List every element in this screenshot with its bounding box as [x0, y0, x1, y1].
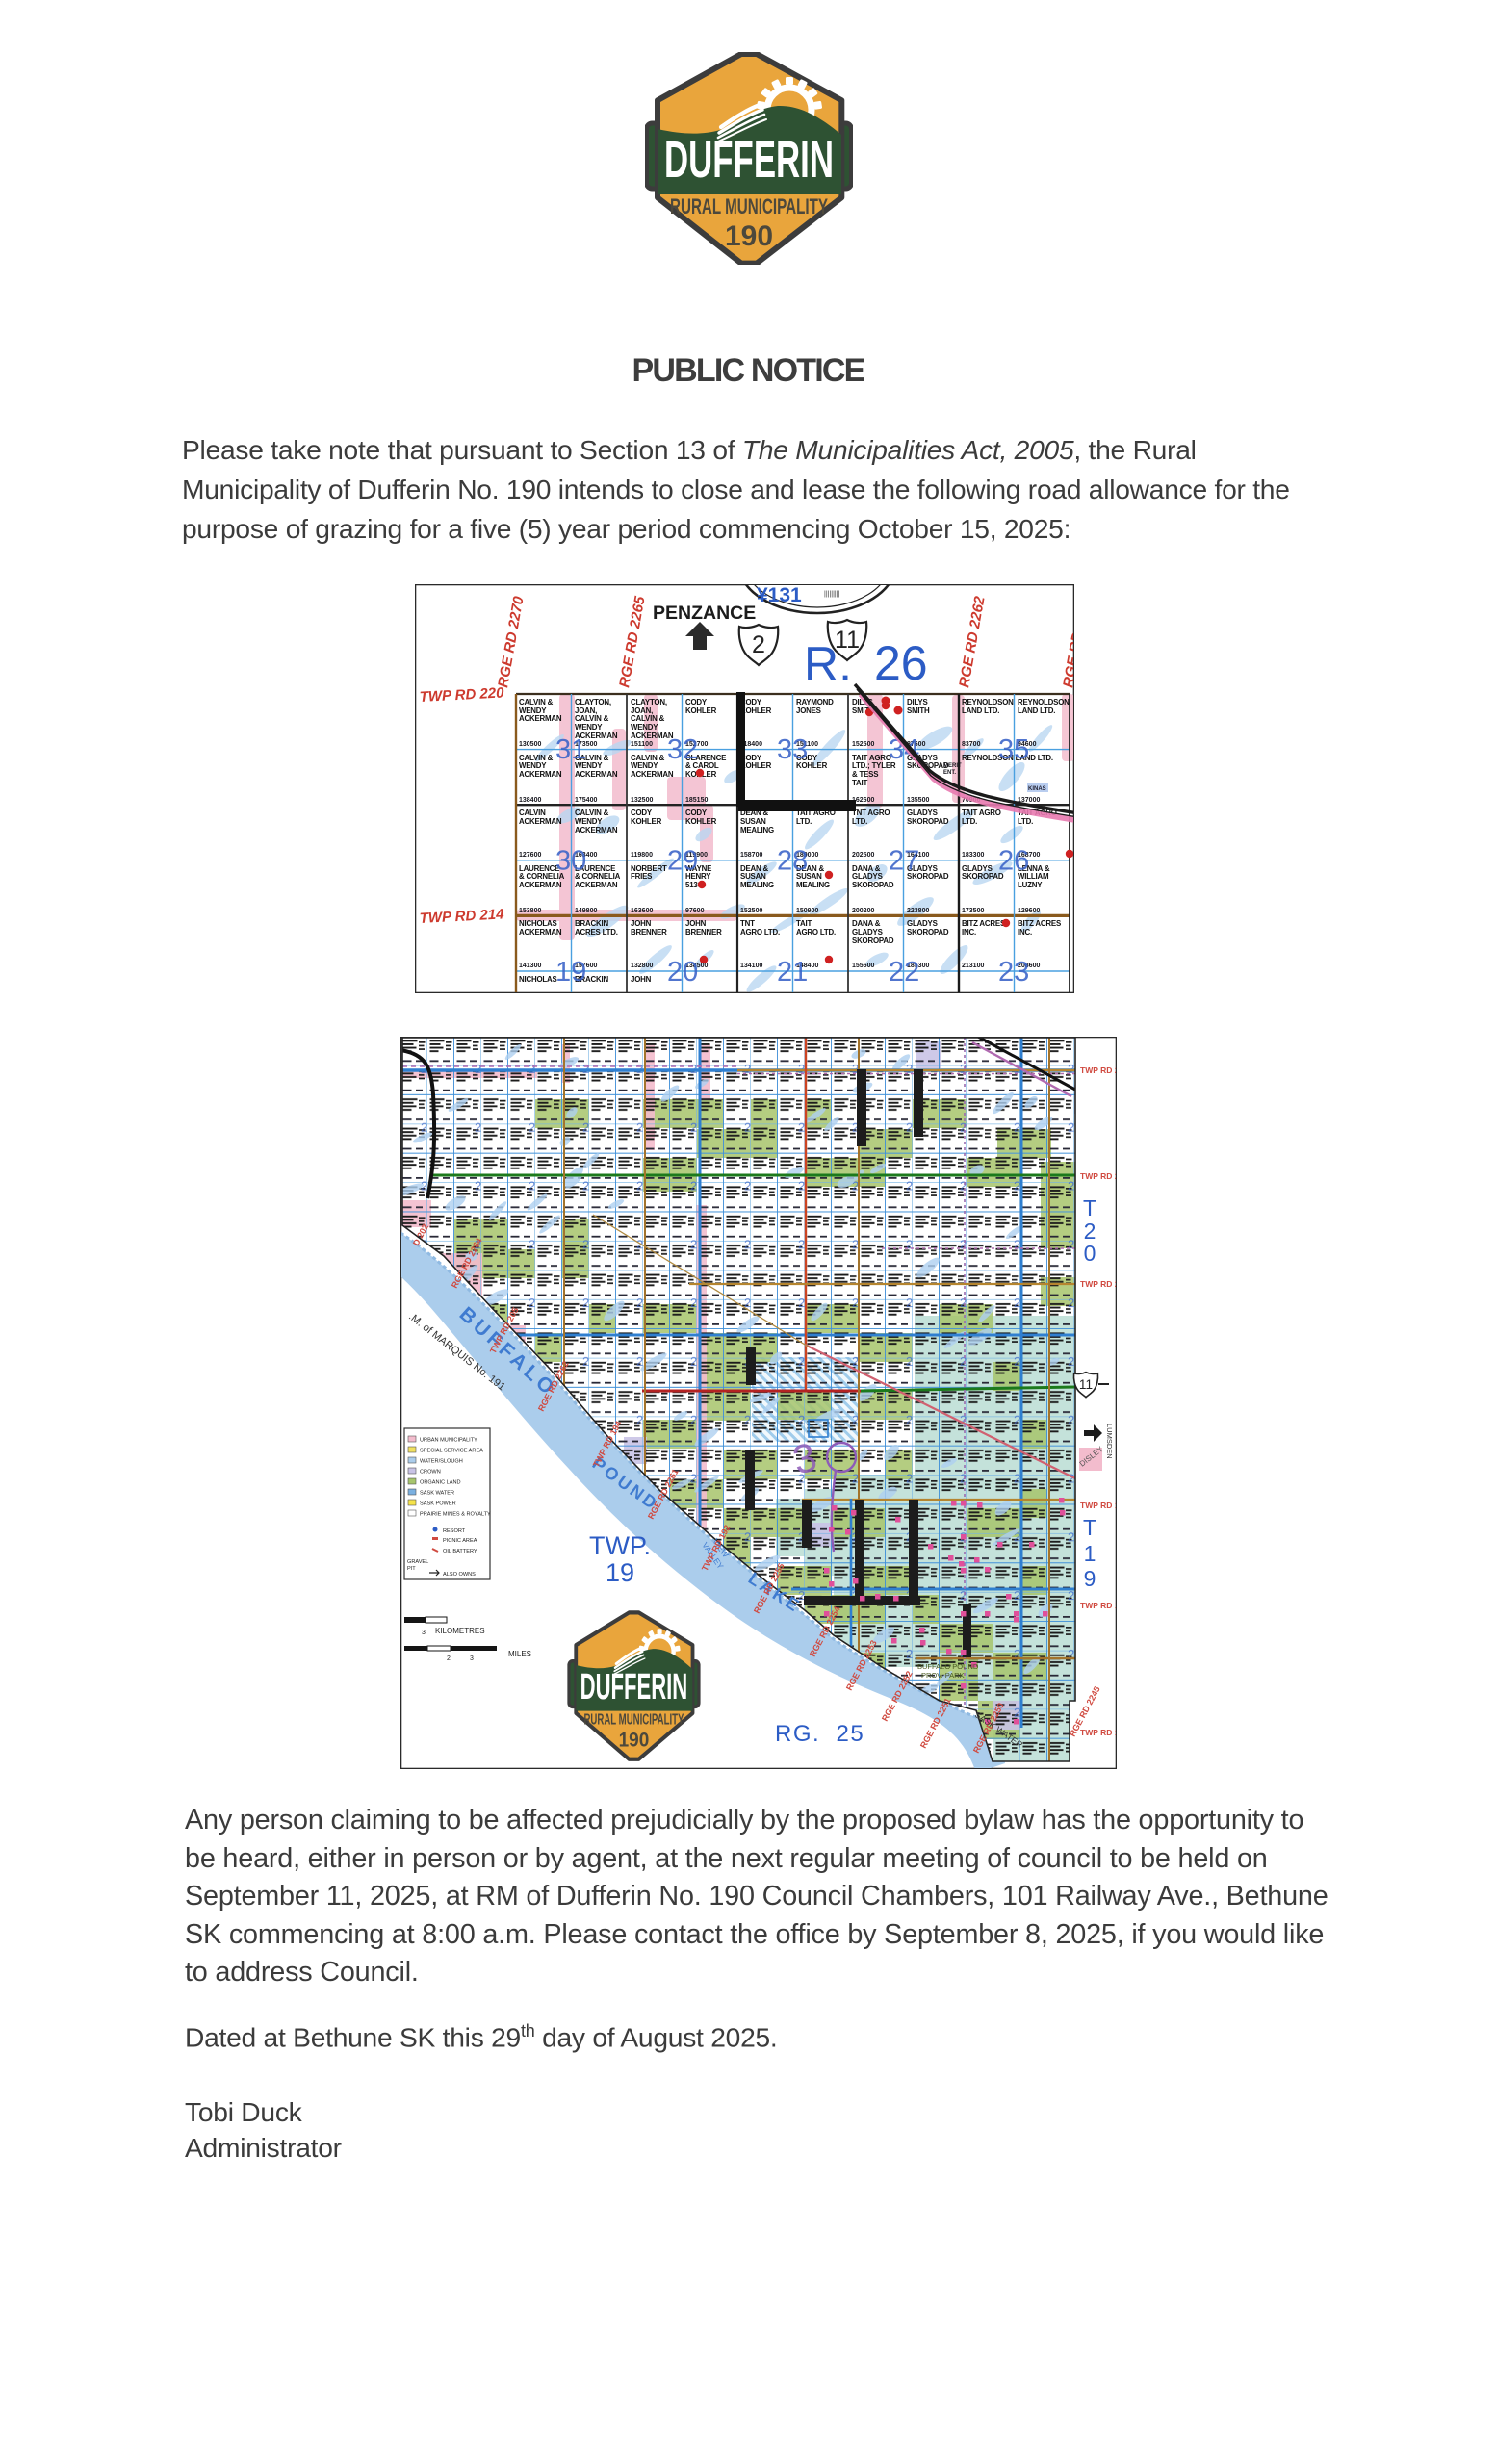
svg-text:TWP RD 2-6: TWP RD 2-6 — [1080, 1279, 1117, 1289]
svg-text:CLAYTON,: CLAYTON, — [575, 698, 611, 706]
svg-text:213100: 213100 — [962, 962, 984, 969]
svg-text:CALVIN: CALVIN — [519, 808, 546, 817]
svg-text:ACKERMAN: ACKERMAN — [631, 770, 674, 779]
svg-text:138400: 138400 — [519, 797, 541, 804]
svg-text:CALVIN &: CALVIN & — [631, 714, 665, 723]
svg-text:TWP RD 2-0: TWP RD 2-0 — [1080, 1171, 1117, 1181]
svg-text:127600: 127600 — [519, 852, 541, 859]
svg-text:LAND LTD.: LAND LTD. — [1018, 706, 1055, 715]
svg-text:KOHLER: KOHLER — [631, 817, 662, 826]
svg-text:AGRO LTD.: AGRO LTD. — [796, 928, 836, 937]
svg-text:ACKERMAN: ACKERMAN — [575, 770, 618, 779]
svg-text:MEALING: MEALING — [740, 826, 774, 834]
svg-text:ACKERMAN: ACKERMAN — [575, 826, 618, 834]
svg-text:3: 3 — [422, 1630, 426, 1636]
svg-text:LTD.: LTD. — [1018, 817, 1033, 826]
svg-text:INC.: INC. — [1018, 928, 1032, 937]
svg-text:185150: 185150 — [685, 797, 708, 804]
svg-text:33: 33 — [777, 734, 808, 765]
svg-text:135500: 135500 — [907, 797, 929, 804]
svg-text:223800: 223800 — [907, 908, 929, 914]
svg-text:MILES: MILES — [508, 1650, 531, 1658]
svg-text:83700: 83700 — [962, 741, 981, 748]
svg-text:MERIT: MERIT — [943, 763, 962, 769]
svg-text:130500: 130500 — [519, 741, 541, 748]
svg-text:GRAVEL: GRAVEL — [407, 1559, 428, 1565]
svg-text:BITZ ACRES: BITZ ACRES — [962, 919, 1005, 928]
svg-text:151100: 151100 — [631, 741, 653, 748]
svg-text:97600: 97600 — [685, 908, 705, 914]
svg-text:132500: 132500 — [631, 797, 653, 804]
svg-text:TWP.: TWP. — [589, 1531, 651, 1560]
svg-text:GLADYS: GLADYS — [852, 928, 883, 937]
svg-text:2: 2 — [752, 631, 765, 658]
svg-text:119800: 119800 — [631, 852, 653, 859]
svg-text:WENDY: WENDY — [631, 761, 658, 770]
svg-text:ENT.: ENT. — [943, 770, 956, 776]
svg-text:RAYMOND: RAYMOND — [796, 698, 834, 706]
svg-text:SKOROPAD: SKOROPAD — [907, 817, 949, 826]
svg-text:LUZNY: LUZNY — [1018, 881, 1043, 889]
svg-text:2: 2 — [447, 1655, 451, 1662]
svg-text:& TESS: & TESS — [852, 770, 878, 779]
svg-text:141300: 141300 — [519, 962, 541, 969]
svg-text:TWP RD 1-8: TWP RD 1-8 — [1080, 1728, 1117, 1737]
svg-text:PRAIRIE MINES & ROYALTY: PRAIRIE MINES & ROYALTY — [420, 1512, 491, 1518]
svg-text:DILYS: DILYS — [907, 698, 928, 706]
svg-text:SPECIAL SERVICE AREA: SPECIAL SERVICE AREA — [420, 1449, 483, 1454]
svg-text:23: 23 — [998, 957, 1029, 988]
svg-text:19: 19 — [555, 957, 586, 988]
svg-text:REYNOLDSON: REYNOLDSON — [962, 698, 1014, 706]
svg-text:MEALING: MEALING — [740, 881, 774, 889]
svg-text:RG. 25: RG. 25 — [775, 1721, 864, 1747]
svg-text:JONES: JONES — [796, 706, 821, 715]
svg-text:155600: 155600 — [852, 962, 874, 969]
svg-text:SKOROPAD: SKOROPAD — [852, 937, 894, 945]
svg-text:CODY: CODY — [685, 808, 708, 817]
svg-text:KOHLER: KOHLER — [685, 817, 717, 826]
svg-text:TWP RD 1-2: TWP RD 1-2 — [1080, 1501, 1117, 1510]
svg-text:WENDY: WENDY — [631, 723, 658, 731]
svg-text:TAIT: TAIT — [852, 779, 868, 787]
svg-text:INC.: INC. — [962, 928, 976, 937]
svg-text:200200: 200200 — [852, 908, 874, 914]
svg-text:202500: 202500 — [852, 852, 874, 859]
svg-text:150900: 150900 — [796, 908, 818, 914]
svg-text:ACRES LTD.: ACRES LTD. — [575, 928, 618, 937]
svg-text:28: 28 — [777, 846, 808, 877]
svg-text:LUMSDEN: LUMSDEN — [1105, 1424, 1114, 1459]
svg-text:29: 29 — [667, 846, 698, 877]
svg-text:¥131: ¥131 — [757, 584, 802, 606]
svg-text:183300: 183300 — [962, 852, 984, 859]
svg-text:REYNOLDSON: REYNOLDSON — [1018, 698, 1070, 706]
svg-text:3: 3 — [470, 1655, 474, 1662]
svg-text:LTD.: LTD. — [796, 817, 812, 826]
svg-text:JOHN: JOHN — [631, 919, 652, 928]
svg-text:WATER/SLOUGH: WATER/SLOUGH — [420, 1459, 463, 1465]
svg-text:TAIT: TAIT — [796, 919, 812, 928]
svg-text:CODY: CODY — [631, 808, 653, 817]
svg-text:CALVIN &: CALVIN & — [519, 698, 554, 706]
svg-text:175400: 175400 — [575, 797, 597, 804]
svg-text:ACKERMAN: ACKERMAN — [519, 881, 562, 889]
svg-text:PICNIC AREA: PICNIC AREA — [443, 1538, 477, 1544]
svg-text:173500: 173500 — [962, 908, 984, 914]
svg-text:T: T — [1083, 1515, 1096, 1540]
svg-text:GLADYS: GLADYS — [907, 919, 938, 928]
svg-text:WENDY: WENDY — [575, 817, 603, 826]
svg-text:149800: 149800 — [575, 908, 597, 914]
svg-text:32: 32 — [667, 734, 698, 765]
svg-text:TNT: TNT — [740, 919, 755, 928]
svg-text:CROWN: CROWN — [420, 1470, 441, 1476]
svg-text:ACKERMAN: ACKERMAN — [575, 881, 618, 889]
svg-text:NICHOLAS: NICHOLAS — [519, 975, 557, 984]
svg-text:26: 26 — [998, 846, 1029, 877]
svg-text:R.: R. — [804, 637, 852, 691]
svg-text:SKOROPAD: SKOROPAD — [907, 928, 949, 937]
svg-text:134100: 134100 — [740, 962, 762, 969]
svg-text:SUSAN: SUSAN — [740, 872, 766, 881]
svg-text:20: 20 — [667, 957, 698, 988]
svg-text:152500: 152500 — [740, 908, 762, 914]
svg-text:BRENNER: BRENNER — [631, 928, 667, 937]
svg-text:TWP RD 2-2: TWP RD 2-2 — [1080, 1065, 1117, 1075]
svg-text:153800: 153800 — [519, 908, 541, 914]
svg-text:129600: 129600 — [1018, 908, 1040, 914]
svg-text:CODY: CODY — [685, 698, 708, 706]
svg-text:KILOMETRES: KILOMETRES — [435, 1627, 485, 1635]
svg-text:NICHOLAS: NICHOLAS — [519, 919, 557, 928]
svg-text:0: 0 — [1084, 1241, 1096, 1266]
svg-text:LAND LTD.: LAND LTD. — [962, 706, 999, 715]
svg-text:FRIES: FRIES — [631, 872, 652, 881]
svg-text:PROV. PARK: PROV. PARK — [921, 1671, 965, 1680]
svg-text:35: 35 — [998, 734, 1029, 765]
svg-text:LTD.: LTD. — [852, 817, 867, 826]
svg-text:|||||||||: ||||||||| — [824, 591, 840, 598]
svg-text:ACKERMAN: ACKERMAN — [519, 714, 562, 723]
svg-text:ORGANIC LAND: ORGANIC LAND — [420, 1480, 461, 1486]
svg-text:11: 11 — [1079, 1377, 1093, 1392]
svg-text:1: 1 — [1084, 1541, 1096, 1566]
svg-text:SUSAN: SUSAN — [740, 817, 766, 826]
svg-text:SMITH: SMITH — [907, 706, 930, 715]
svg-text:KINAS: KINAS — [1028, 786, 1046, 792]
svg-text:T: T — [1083, 1195, 1096, 1220]
svg-text:ACKERMAN: ACKERMAN — [519, 770, 562, 779]
svg-text:SASK WATER: SASK WATER — [420, 1491, 454, 1497]
svg-text:SKOROPAD: SKOROPAD — [852, 881, 894, 889]
svg-text:27: 27 — [889, 846, 919, 877]
svg-text:26: 26 — [874, 636, 928, 690]
svg-text:19: 19 — [606, 1558, 634, 1587]
svg-text:TAIT AGRO: TAIT AGRO — [962, 808, 1001, 817]
svg-text:URBAN MUNICIPALITY: URBAN MUNICIPALITY — [420, 1438, 477, 1444]
svg-text:DANA &: DANA & — [852, 919, 881, 928]
svg-text:CALVIN &: CALVIN & — [575, 714, 609, 723]
svg-text:LTD.: LTD. — [962, 817, 977, 826]
svg-text:BITZ ACRES: BITZ ACRES — [1018, 919, 1061, 928]
svg-text:SASK POWER: SASK POWER — [420, 1501, 456, 1507]
svg-text:CALVIN &: CALVIN & — [575, 808, 609, 817]
svg-text:JOHN: JOHN — [685, 919, 707, 928]
svg-text:31: 31 — [555, 734, 586, 765]
svg-text:PENZANCE: PENZANCE — [653, 603, 756, 624]
svg-text:TWP RD 1-0: TWP RD 1-0 — [1080, 1601, 1117, 1610]
svg-text:9: 9 — [1084, 1566, 1096, 1591]
svg-text:CLAYTON,: CLAYTON, — [631, 698, 667, 706]
svg-text:GLADYS: GLADYS — [852, 872, 883, 881]
svg-text:WENDY: WENDY — [575, 723, 603, 731]
svg-text:132800: 132800 — [631, 962, 653, 969]
svg-text:BUFFALO POUND: BUFFALO POUND — [917, 1662, 979, 1671]
svg-text:22: 22 — [889, 957, 919, 988]
svg-text:AGRO LTD.: AGRO LTD. — [740, 928, 780, 937]
svg-text:30: 30 — [555, 846, 586, 877]
svg-text:WENDY: WENDY — [519, 761, 547, 770]
svg-text:JOHN: JOHN — [631, 975, 652, 984]
svg-text:158700: 158700 — [740, 852, 762, 859]
svg-text:MEALING: MEALING — [796, 881, 830, 889]
svg-text:KOHLER: KOHLER — [685, 706, 717, 715]
svg-text:ALSO OWNS: ALSO OWNS — [443, 1572, 476, 1578]
svg-text:RESORT: RESORT — [443, 1528, 466, 1534]
svg-text:TNT AGRO: TNT AGRO — [852, 808, 890, 817]
svg-text:152500: 152500 — [852, 741, 874, 748]
svg-text:BRACKIN: BRACKIN — [575, 919, 608, 928]
svg-text:OIL BATTERY: OIL BATTERY — [443, 1549, 477, 1554]
svg-text:GLADYS: GLADYS — [907, 808, 938, 817]
svg-text:ACKERMAN: ACKERMAN — [519, 817, 562, 826]
svg-text:PIT: PIT — [407, 1566, 416, 1572]
svg-text:BRENNER: BRENNER — [685, 928, 722, 937]
svg-text:ACKERMAN: ACKERMAN — [519, 928, 562, 937]
svg-text:21: 21 — [777, 957, 808, 988]
svg-text:163600: 163600 — [631, 908, 653, 914]
